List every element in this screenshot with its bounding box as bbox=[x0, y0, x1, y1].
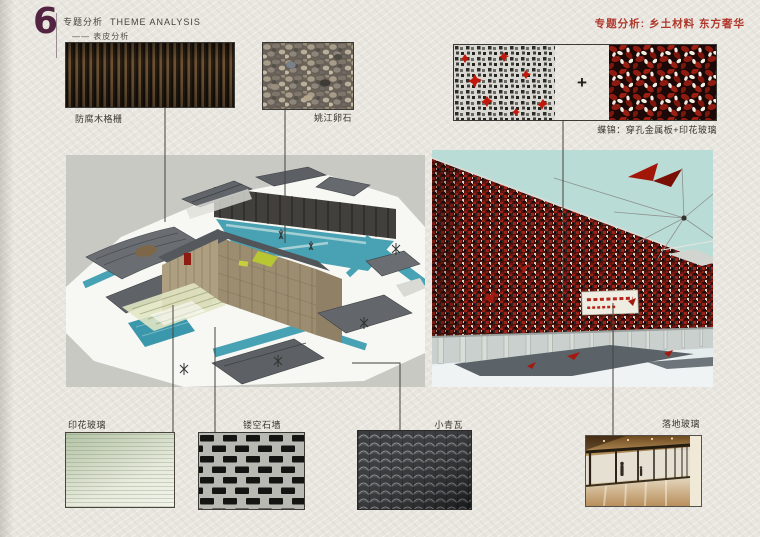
pebbles-label: 姚江卵石 bbox=[262, 111, 352, 124]
section-number: 6 bbox=[33, 4, 58, 40]
grey-tile-swatch bbox=[357, 430, 472, 510]
printed-glass-swatch bbox=[65, 432, 175, 508]
combo-gap: + bbox=[555, 45, 609, 120]
printed-red-glass-swatch bbox=[609, 45, 716, 120]
floor-glass-label: 落地玻璃 bbox=[585, 417, 700, 430]
hollow-stone-wall-swatch bbox=[198, 432, 305, 510]
hollow-stone-wall-label: 镂空石墙 bbox=[243, 418, 281, 431]
page-title-zh: 专题分析 bbox=[63, 17, 103, 27]
header-divider bbox=[56, 13, 57, 58]
printed-glass-label: 印花玻璃 bbox=[68, 418, 106, 431]
courtyard-aerial-render bbox=[66, 155, 425, 387]
pebbles-swatch bbox=[262, 42, 354, 110]
perforated-metal-swatch bbox=[454, 45, 555, 120]
wood-grille-swatch bbox=[65, 42, 235, 108]
metal-glass-combo-label: 蝶锦：穿孔金属板+印花玻璃 bbox=[453, 123, 717, 136]
page-edge-shadow bbox=[0, 0, 14, 537]
metal-glass-combo-swatch: + bbox=[453, 44, 717, 121]
plus-icon: + bbox=[577, 73, 587, 93]
page-subtitle: —— 表皮分析 bbox=[72, 31, 129, 42]
page-title-en: THEME ANALYSIS bbox=[110, 17, 201, 27]
header-right-title: 专题分析: 乡土材料 东方奢华 bbox=[595, 16, 745, 31]
wood-grille-label: 防腐木格栅 bbox=[75, 112, 123, 125]
red-facade-perspective-render bbox=[432, 150, 713, 387]
page-title: 专题分析 THEME ANALYSIS bbox=[63, 15, 201, 28]
floor-glass-swatch bbox=[585, 435, 702, 507]
presentation-board: 6 专题分析 THEME ANALYSIS —— 表皮分析 专题分析: 乡土材料… bbox=[0, 0, 760, 537]
